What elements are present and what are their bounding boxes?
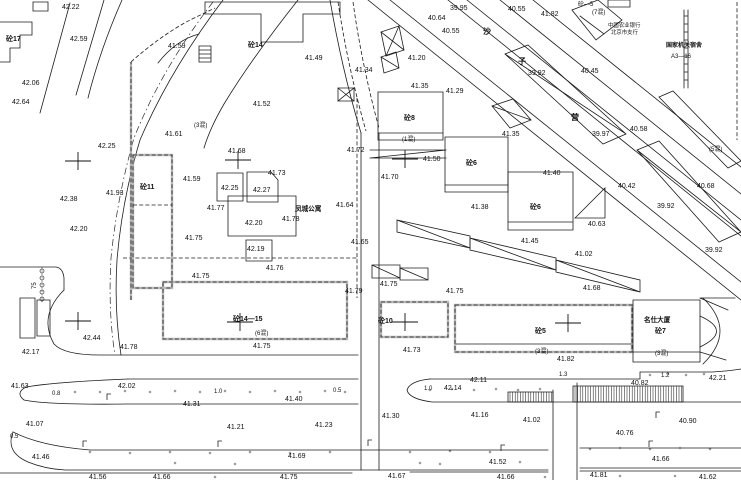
elevation-label: 砼10 (378, 316, 393, 325)
plan-line (508, 172, 573, 230)
tree-dot-icon (199, 391, 202, 394)
elevation-label: 42.20 (70, 226, 88, 233)
elevation-label: 41.75 (446, 288, 464, 295)
elevation-label: 1.2 (661, 373, 670, 379)
elevation-label: 42.17 (22, 349, 40, 356)
elevation-label: 42.25 (221, 185, 239, 192)
elevation-label: 砼17 (6, 34, 21, 43)
elevation-label: 41.16 (471, 412, 489, 419)
elevation-label: 42.22 (62, 4, 80, 11)
elevation-label: 40.82 (631, 380, 649, 387)
elevation-label: 39.92 (657, 203, 675, 210)
tree-dot-icon (409, 451, 412, 454)
elevation-label: 40.55 (508, 6, 526, 13)
elevation-label: 41.02 (523, 417, 541, 424)
elevation-label: 40.63 (588, 221, 606, 228)
street-lamp-icon (656, 412, 660, 418)
survey-cross-icon (392, 313, 418, 331)
elevation-label: 40.76 (616, 430, 634, 437)
elevation-label: (6混) (255, 329, 268, 337)
elevation-label: 砼6 (466, 158, 477, 167)
plan-line (20, 298, 35, 338)
tree-dot-icon (703, 373, 706, 376)
tree-dot-icon (249, 391, 252, 394)
tree-dot-icon (99, 391, 102, 394)
plan-line (204, 0, 298, 148)
plan-line (400, 268, 428, 280)
elevation-label: 北京市支行 (611, 28, 639, 36)
plan-line (205, 2, 340, 42)
elevation-label: (3混) (194, 121, 207, 129)
tree-dot-icon (619, 447, 622, 450)
elevation-label: 41.59 (183, 176, 201, 183)
elevation-label: 42.06 (22, 80, 40, 87)
elevation-label: 41.75 (192, 273, 210, 280)
tree-dot-icon (324, 390, 327, 393)
elevation-label: 42.02 (118, 383, 136, 390)
plan-line (700, 316, 717, 347)
elevation-label: 砼5 (535, 326, 546, 335)
elevation-label: 42.59 (70, 36, 88, 43)
hatched-strip (573, 386, 683, 402)
elevation-label: A3—16 (671, 54, 692, 60)
elevation-label: 39.92 (705, 247, 723, 254)
tree-dot-icon (174, 390, 177, 393)
elevation-label: 41.78 (120, 344, 138, 351)
elevation-label: 41.69 (288, 453, 306, 460)
elevation-label: 41.82 (541, 11, 559, 18)
plan-line (33, 2, 48, 11)
tree-dot-icon (74, 391, 77, 394)
elevation-label: 41.45 (521, 238, 539, 245)
plan-line (199, 46, 211, 62)
tree-dot-icon (169, 451, 172, 454)
elevation-label: 41.46 (32, 454, 50, 461)
elevation-label: 41.81 (590, 472, 608, 479)
elevation-label: 42.19 (247, 246, 265, 253)
plan-line (48, 290, 358, 355)
elevation-label: (5混) (709, 145, 722, 153)
elevation-label: 41.77 (207, 205, 225, 212)
tree-dot-icon (234, 463, 237, 466)
tree-dot-icon (419, 462, 422, 465)
tree-dot-icon (209, 452, 212, 455)
tree-dot-icon (674, 475, 677, 478)
street-lamp-icon (83, 441, 87, 447)
elevation-label: 41.50 (423, 156, 441, 163)
plan-line (575, 188, 605, 218)
plan-line (448, 0, 741, 236)
tree-dot-icon (517, 389, 520, 392)
elevation-label: 40.58 (630, 126, 648, 133)
plan-line (76, 0, 104, 95)
elevation-label: 子 (518, 57, 526, 66)
elevation-label: 41.21 (227, 424, 245, 431)
tree-dot-icon (489, 451, 492, 454)
elevation-label: 41.66 (652, 456, 670, 463)
site-plan: 42.2242.59砼1742.0642.6442.2542.3842.2041… (0, 0, 741, 480)
tree-dot-icon (274, 390, 277, 393)
elevation-label: 国家机关宿舍 (666, 41, 703, 49)
plan-line (700, 298, 735, 360)
survey-cross-icon (392, 150, 418, 168)
elevation-label: 41.68 (583, 285, 601, 292)
elevation-label: 42.21 (709, 375, 727, 382)
tree-dot-icon (329, 451, 332, 454)
elevation-label: 41.29 (446, 88, 464, 95)
elevation-label: 42.14 (444, 385, 462, 392)
tree-dot-icon (224, 390, 227, 393)
elevation-label: 砼7 (655, 326, 666, 335)
elevation-label: 41.30 (382, 413, 400, 420)
elevation-label: 39.92 (528, 70, 546, 77)
elevation-label: 41.31 (183, 401, 201, 408)
plan-line (353, 2, 379, 128)
tree-dot-icon (174, 462, 177, 465)
elevation-label: 1.0 (214, 389, 223, 395)
tree-dot-icon (544, 476, 547, 479)
elevation-label: 41.40 (543, 170, 561, 177)
site-plan-canvas: 42.2242.59砼1742.0642.6442.2542.3842.2041… (0, 0, 741, 480)
elevation-label: 41.35 (411, 83, 429, 90)
tree-dot-icon (249, 451, 252, 454)
plan-line (381, 26, 404, 56)
tree-dot-icon (619, 475, 622, 478)
elevation-label: 41.75 (380, 281, 398, 288)
elevation-label: 41.34 (355, 67, 373, 74)
plan-line (659, 91, 741, 168)
plan-line (372, 265, 400, 278)
elevation-label: (3混) (655, 349, 668, 357)
elevation-label: 砼14—15 (233, 314, 263, 323)
elevation-label: 42.11 (470, 377, 487, 384)
elevation-label: 41.67 (388, 473, 406, 480)
tree-dot-icon (519, 461, 522, 464)
elevation-label: 41.38 (471, 204, 489, 211)
elevation-label: 41.49 (305, 55, 323, 62)
elevation-label: 沙 (483, 27, 491, 36)
plan-line (397, 220, 470, 248)
elevation-label: 41.62 (699, 474, 717, 480)
elevation-label: 75 (32, 282, 38, 289)
elevation-label: 42.44 (83, 335, 101, 342)
plan-line (88, 0, 122, 98)
elevation-label: 41.79 (345, 288, 363, 295)
elevation-label: 41.64 (336, 202, 354, 209)
elevation-label: 41.52 (253, 101, 271, 108)
tree-dot-icon (679, 447, 682, 450)
elevation-label: 41.23 (315, 422, 333, 429)
tree-dot-icon (649, 374, 652, 377)
elevation-label: 41.61 (165, 131, 183, 138)
elevation-label: 41.20 (408, 55, 426, 62)
elevation-label: 0.5 (333, 388, 342, 394)
tree-dot-icon (473, 389, 476, 392)
plan-line (13, 432, 548, 450)
elevation-label: 中国农业银行 (608, 21, 641, 29)
elevation-label: 41.75 (280, 474, 298, 480)
elevation-label: 40.55 (442, 28, 460, 35)
plan-line (470, 238, 556, 270)
tree-dot-icon (89, 451, 92, 454)
elevation-label: 39.95 (450, 5, 468, 12)
elevation-label: 42.64 (12, 99, 30, 106)
elevation-label: 41.82 (557, 356, 575, 363)
elevation-label: 41.78 (282, 216, 300, 223)
elevation-label: 41.52 (489, 459, 507, 466)
elevation-label: 砼6 (530, 202, 541, 211)
survey-cross-icon (65, 152, 91, 170)
elevation-label: 41.02 (575, 251, 593, 258)
elevation-label: 41.72 (347, 147, 365, 154)
plan-line (11, 432, 548, 470)
elevation-label: 40.68 (697, 183, 715, 190)
elevation-label: 41.65 (351, 239, 369, 246)
elevation-label: 41.75 (253, 343, 271, 350)
elevation-label: 40.90 (679, 418, 697, 425)
building-slab-outline (133, 155, 172, 288)
elevation-label: 42.20 (245, 220, 263, 227)
elevation-label: 40.45 (581, 68, 599, 75)
elevation-label: 砼14 (248, 40, 263, 49)
elevation-label: 41.76 (266, 265, 284, 272)
elevation-label: 41.73 (403, 347, 421, 354)
street-lamp-icon (649, 441, 653, 447)
elevation-label: 凤城公寓 (295, 204, 322, 213)
elevation-label: 42.38 (60, 196, 78, 203)
elevation-label: 42.27 (253, 187, 271, 194)
elevation-label: 41.63 (11, 383, 29, 390)
elevation-label: 砼11 (140, 182, 155, 191)
tree-dot-icon (299, 391, 302, 394)
tree-dot-icon (124, 390, 127, 393)
elevation-label: 砼8 (404, 113, 415, 122)
tree-dot-icon (495, 388, 498, 391)
tree-dot-icon (439, 463, 442, 466)
building-slab-outline (133, 155, 172, 288)
elevation-label: 41.68 (228, 148, 246, 155)
elevation-label: 41.93 (106, 190, 124, 197)
tree-dot-icon (344, 391, 347, 394)
elevation-label: 41.56 (89, 474, 107, 480)
elevation-label: 41.66 (497, 474, 515, 480)
plan-line (608, 0, 630, 7)
plan-line (40, 3, 70, 113)
elevation-label: 1.3 (559, 372, 568, 378)
street-lamp-icon (368, 440, 372, 446)
elevation-label: 40.42 (618, 183, 636, 190)
tree-dot-icon (539, 388, 542, 391)
plan-line (381, 52, 399, 73)
elevation-label: 41.07 (26, 421, 44, 428)
elevation-label: 42.25 (98, 143, 116, 150)
survey-cross-icon (65, 312, 91, 330)
tree-dot-icon (149, 391, 152, 394)
elevation-label: 1.0 (424, 386, 433, 392)
elevation-label: 41.59 (168, 43, 186, 50)
elevation-label: 39.97 (592, 131, 610, 138)
elevation-label: 0.5 (10, 434, 19, 440)
elevation-label: (3混) (535, 347, 548, 355)
elevation-label: 41.75 (185, 235, 203, 242)
plan-line (637, 141, 741, 242)
plan-line (338, 88, 354, 101)
elevation-label: 41.66 (153, 474, 171, 480)
street-lamp-icon (107, 394, 111, 400)
elevation-label: 41.73 (268, 170, 286, 177)
plan-line (684, 10, 688, 88)
tree-dot-icon (129, 452, 132, 455)
elevation-label: 41.70 (381, 174, 399, 181)
elevation-label: 41.40 (285, 396, 303, 403)
elevation-label: (1混) (402, 135, 415, 143)
tree-dot-icon (214, 476, 217, 479)
elevation-label: 砼—5 (578, 0, 594, 8)
plan-line (492, 99, 531, 128)
street-lamp-icon (218, 441, 222, 447)
survey-cross-icon (555, 314, 581, 332)
elevation-label: 40.64 (428, 15, 446, 22)
elevation-label: 名仕大厦 (644, 315, 671, 324)
elevation-label: 0.8 (52, 391, 61, 397)
elevation-label: 41.35 (502, 131, 520, 138)
elevation-label: 营 (571, 112, 579, 122)
tree-dot-icon (685, 374, 688, 377)
elevation-label: (7混) (592, 8, 605, 16)
